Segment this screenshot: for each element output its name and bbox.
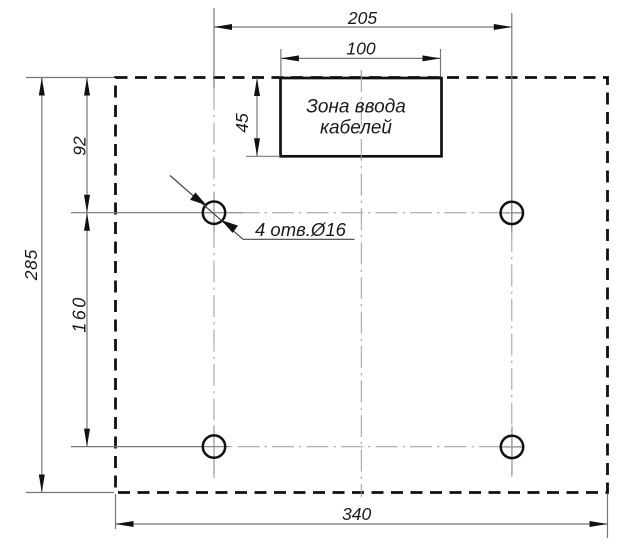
svg-text:160: 160 — [70, 295, 90, 333]
svg-text:100: 100 — [346, 39, 375, 59]
svg-text:340: 340 — [342, 504, 371, 524]
svg-text:Зона ввода: Зона ввода — [306, 97, 406, 118]
svg-text:285: 285 — [21, 249, 41, 281]
svg-text:205: 205 — [347, 8, 377, 28]
svg-text:4 отв.Ø16: 4 отв.Ø16 — [255, 219, 347, 240]
svg-text:92: 92 — [70, 136, 90, 156]
svg-text:45: 45 — [232, 113, 252, 133]
svg-text:кабелей: кабелей — [320, 117, 392, 138]
